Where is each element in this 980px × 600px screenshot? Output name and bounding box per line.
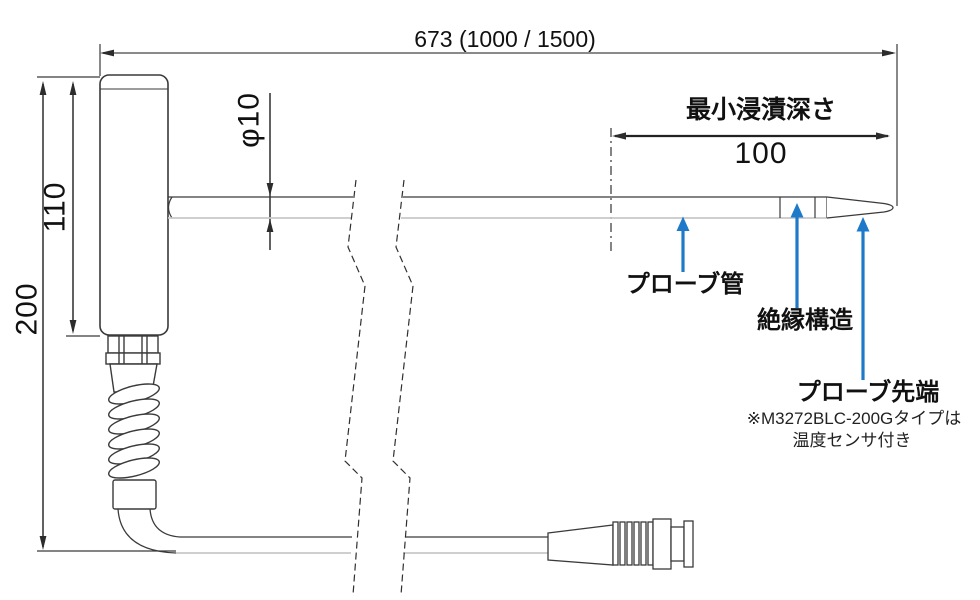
- dim-handle-length-label: 110: [39, 182, 72, 233]
- bnc-connector: [548, 519, 693, 569]
- probe-tube-label: プローブ管: [626, 272, 745, 298]
- coil-sleeve: [113, 480, 156, 509]
- probe-drawing: [0, 0, 980, 600]
- insulation-label: 絶縁構造: [757, 308, 853, 334]
- strain-relief-nut: [108, 336, 158, 353]
- dim-diameter-line: [267, 93, 274, 250]
- cable: [118, 509, 549, 553]
- dim-diameter-label: φ10: [233, 92, 266, 148]
- connector-boot: [548, 525, 613, 565]
- dim-immersion-label: 最小浸漬深さ: [686, 97, 836, 125]
- technical-drawing-page: 673 (1000 / 1500) 最小浸漬深さ 100 110 200 φ10…: [0, 0, 980, 600]
- probe-tip-shape: [827, 197, 893, 218]
- tube-fillet: [169, 197, 173, 218]
- dim-total-height-label: 200: [11, 282, 44, 335]
- strain-relief-ring: [106, 353, 160, 364]
- probe-handle: [100, 75, 168, 335]
- probe-tube: [168, 197, 893, 218]
- break-lines: [345, 180, 413, 595]
- probe-tip-note-line1: ※M3272BLC-200Gタイプは: [747, 410, 962, 429]
- cable-coil: [107, 380, 161, 509]
- probe-tip-label: プローブ先端: [797, 380, 940, 406]
- connector-ring: [653, 519, 671, 569]
- dim-immersion-value: 100: [734, 137, 787, 170]
- probe-tip-note-line2: 温度センサ付き: [793, 432, 912, 451]
- dim-overall-length-label: 673 (1000 / 1500): [414, 27, 596, 52]
- connector-flange: [684, 521, 693, 567]
